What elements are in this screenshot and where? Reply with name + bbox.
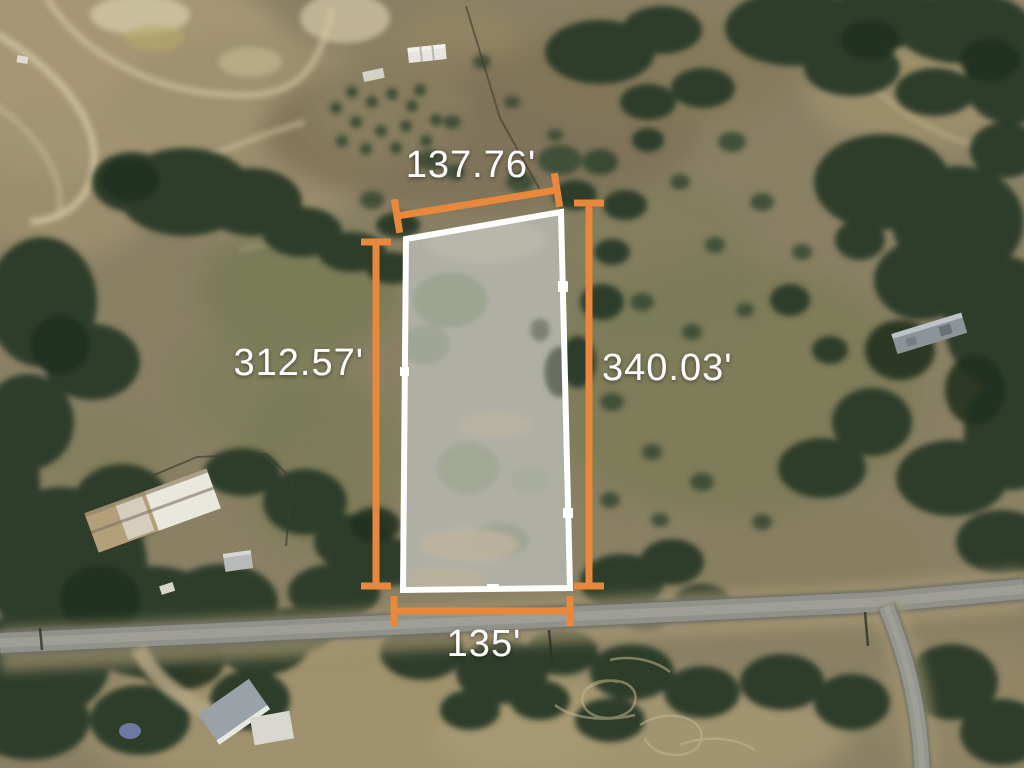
trampoline bbox=[119, 723, 141, 739]
satellite-image: 137.76' 312.57' 340.03' 135' bbox=[0, 0, 1024, 768]
dimension-label-top: 137.76' bbox=[406, 144, 536, 186]
dimension-label-right: 340.03' bbox=[602, 347, 732, 389]
aerial-parcel-map: 137.76' 312.57' 340.03' 135' bbox=[0, 0, 1024, 768]
dimension-label-bottom: 135' bbox=[447, 623, 522, 665]
dimension-label-left: 312.57' bbox=[234, 342, 364, 384]
parcel bbox=[399, 212, 576, 592]
